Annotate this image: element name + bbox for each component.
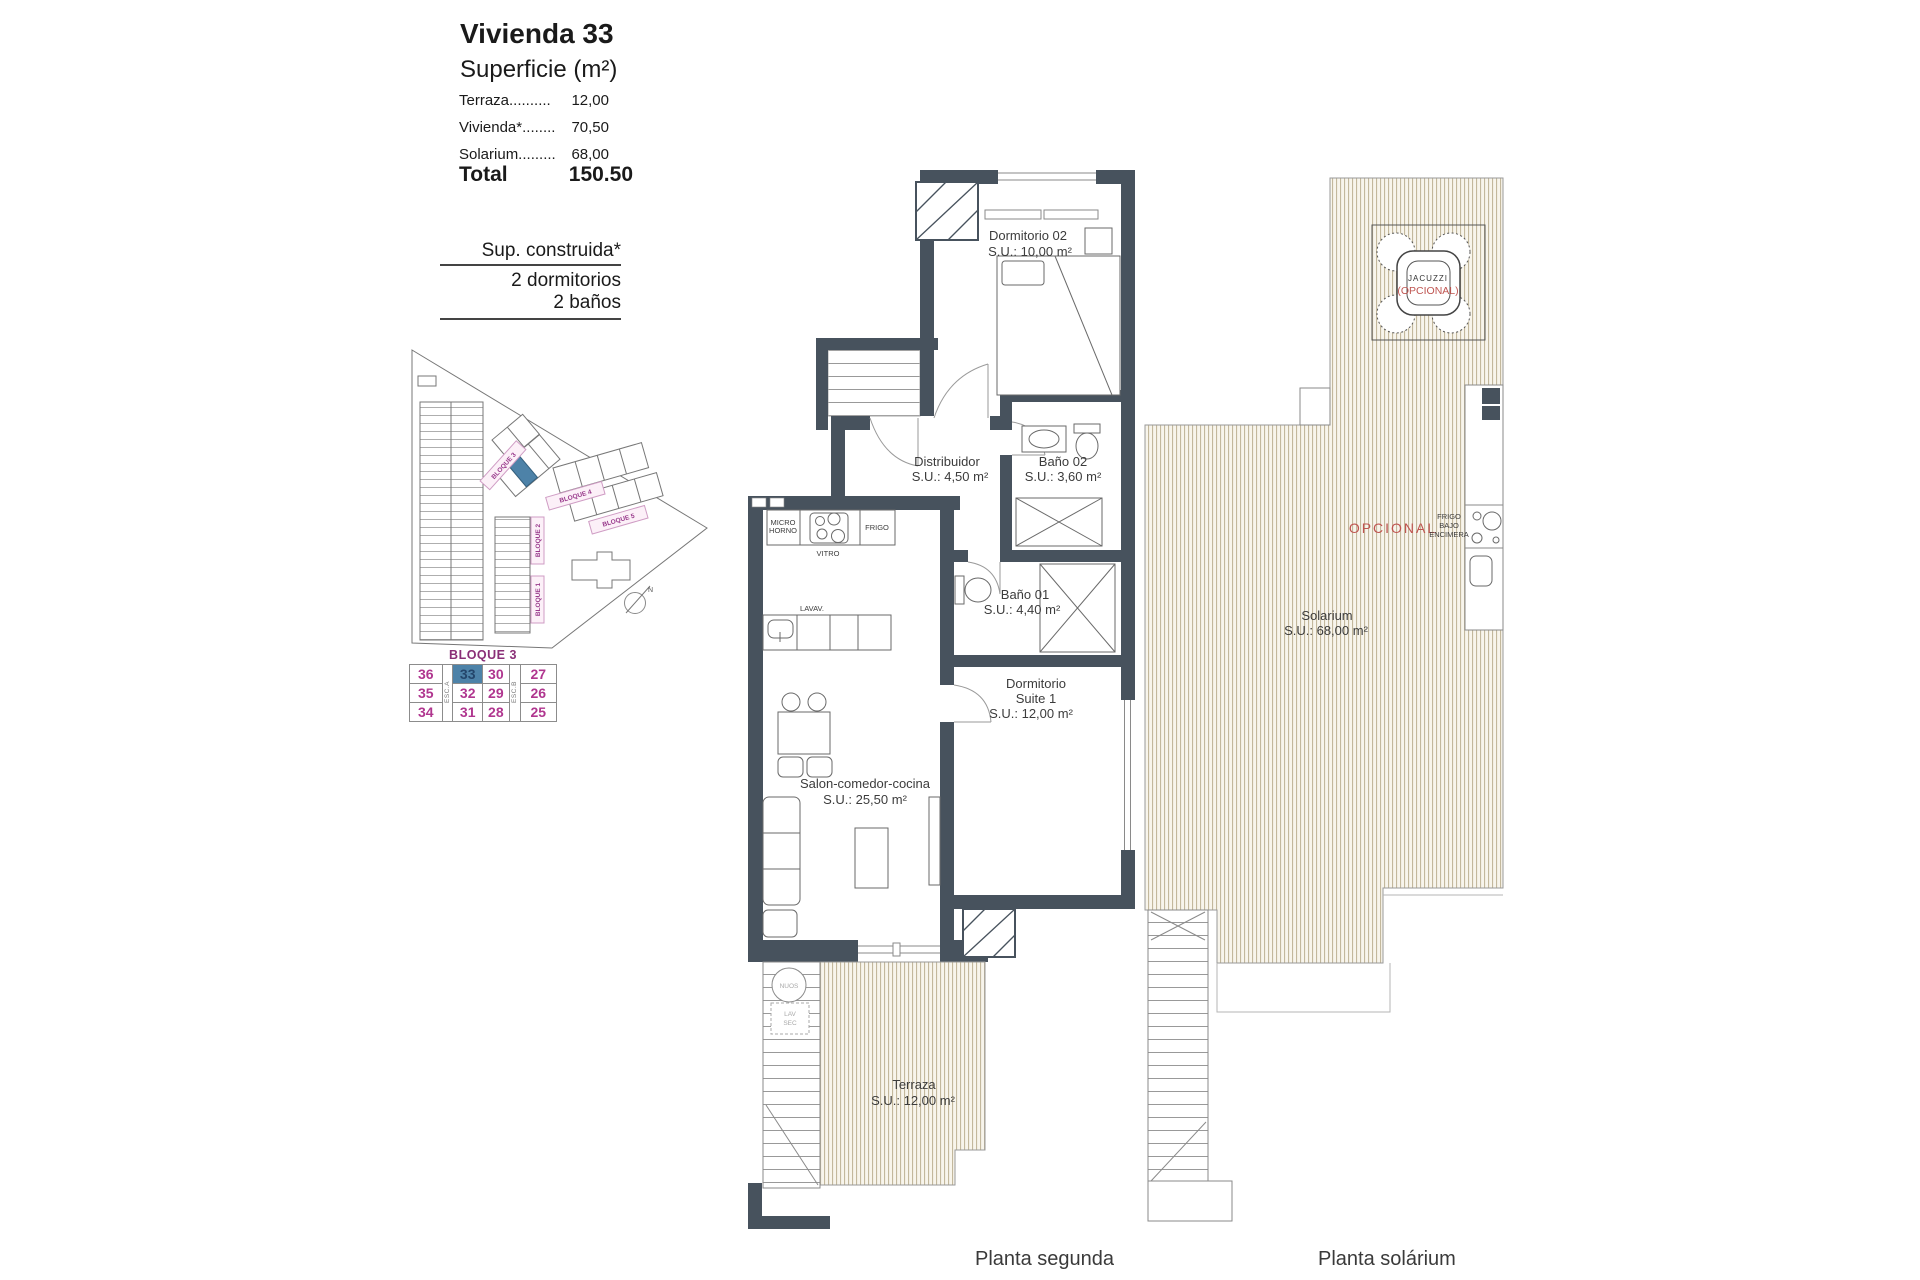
coffee-table-icon (855, 828, 888, 888)
room-label-bano02: Baño 02 (1039, 454, 1087, 469)
frigo-label-2: BAJO (1439, 521, 1459, 530)
site-label-bloque1: BLOQUE 1 (535, 583, 542, 617)
water-heater-label: NUOS (780, 983, 799, 990)
toilet-icon (955, 576, 964, 604)
outdoor-kitchen-strip (1465, 385, 1503, 630)
jacuzzi-optional-label: (OPCIONAL) (1397, 285, 1458, 297)
dining-set-icon (778, 693, 832, 777)
floorplan-drawing: BLOQUE 3 BLOQUE 4 BLOQUE 5 BLOQUE 2 (0, 0, 1920, 1280)
bathroom2-fixtures (1016, 424, 1102, 546)
room-label-suite: Dormitorio (1006, 676, 1066, 691)
jacuzzi-label: JACUZZI (1408, 274, 1448, 283)
room-label-terraza: Terraza (892, 1077, 936, 1092)
site-label-bloque2: BLOQUE 2 (535, 524, 542, 558)
frigo-label-1: FRIGO (1437, 512, 1461, 521)
frigo-label-3: ENCIMERA (1429, 530, 1469, 539)
dryer-label: SEC (783, 1020, 797, 1027)
washer-dryer-icon (771, 1003, 809, 1034)
site-rowhouses-middle (495, 517, 530, 633)
room-area-salon: S.U.: 25,50 m² (823, 792, 907, 807)
room-area-suite: S.U.: 12,00 m² (989, 706, 1073, 721)
stair-landing (1148, 1181, 1232, 1221)
service-shaft-icon (963, 909, 1015, 957)
common-stairs (828, 350, 920, 416)
appliance-label-horno: HORNO (769, 526, 797, 535)
room-area-dorm02: S.U.: 10,00 m² (988, 244, 1072, 259)
planta-segunda-plan: NUOS LAV SEC Dormitorio 02 S.U.: 10,00 m… (748, 170, 1135, 1229)
dishwasher-counter (763, 615, 891, 650)
room-area-distribuidor: S.U.: 4,50 m² (912, 469, 989, 484)
floorplan-sheet: Vivienda 33 Superficie (m²) Terraza.....… (0, 0, 1920, 1280)
room-label-solarium: Solarium (1301, 608, 1352, 623)
sofa-icon (763, 797, 800, 937)
nightstand-icon (1085, 228, 1112, 254)
sliding-door (858, 943, 940, 956)
toilet-icon (1074, 424, 1100, 433)
appliance-label-frigo: FRIGO (865, 523, 889, 532)
room-area-bano01: S.U.: 4,40 m² (984, 602, 1061, 617)
room-label-suite2: Suite 1 (1016, 691, 1056, 706)
armchair-icon (763, 910, 797, 937)
room-label-dorm02: Dormitorio 02 (989, 228, 1067, 243)
room-label-distribuidor: Distribuidor (914, 454, 980, 469)
north-compass-icon: N (625, 586, 654, 614)
window (985, 173, 1098, 219)
room-area-solarium: S.U.: 68,00 m² (1284, 623, 1368, 638)
window (1125, 700, 1131, 850)
appliance-label-lavav: LAVAV. (800, 604, 824, 613)
lower-roof-outline (1217, 963, 1390, 1012)
room-area-terraza: S.U.: 12,00 m² (871, 1093, 955, 1108)
tv-unit-icon (929, 797, 940, 885)
service-shaft-icon (1482, 406, 1500, 420)
site-small-building (418, 376, 436, 386)
service-shaft-icon (1482, 388, 1500, 404)
site-plan-map: BLOQUE 3 BLOQUE 4 BLOQUE 5 BLOQUE 2 (412, 350, 707, 648)
exterior-stairs: NUOS LAV SEC (763, 962, 820, 1188)
wall-vent (770, 498, 784, 507)
planta-solarium-plan: JACUZZI (OPCIONAL) Solarium S.U.: 68,00 … (1145, 178, 1503, 1221)
washer-label: LAV (784, 1011, 796, 1018)
left-landing (1300, 388, 1330, 425)
service-shaft-icon (916, 182, 978, 240)
appliance-label-vitro: VITRO (817, 549, 840, 558)
room-area-bano02: S.U.: 3,60 m² (1025, 469, 1102, 484)
wall-vent (752, 498, 766, 507)
room-label-bano01: Baño 01 (1001, 587, 1049, 602)
svg-text:N: N (648, 587, 653, 594)
terraza-deck (820, 962, 985, 1185)
room-label-salon: Salon-comedor-cocina (800, 776, 931, 791)
opcional-label: OPCIONAL (1349, 520, 1437, 536)
bed-double-icon (997, 256, 1120, 395)
